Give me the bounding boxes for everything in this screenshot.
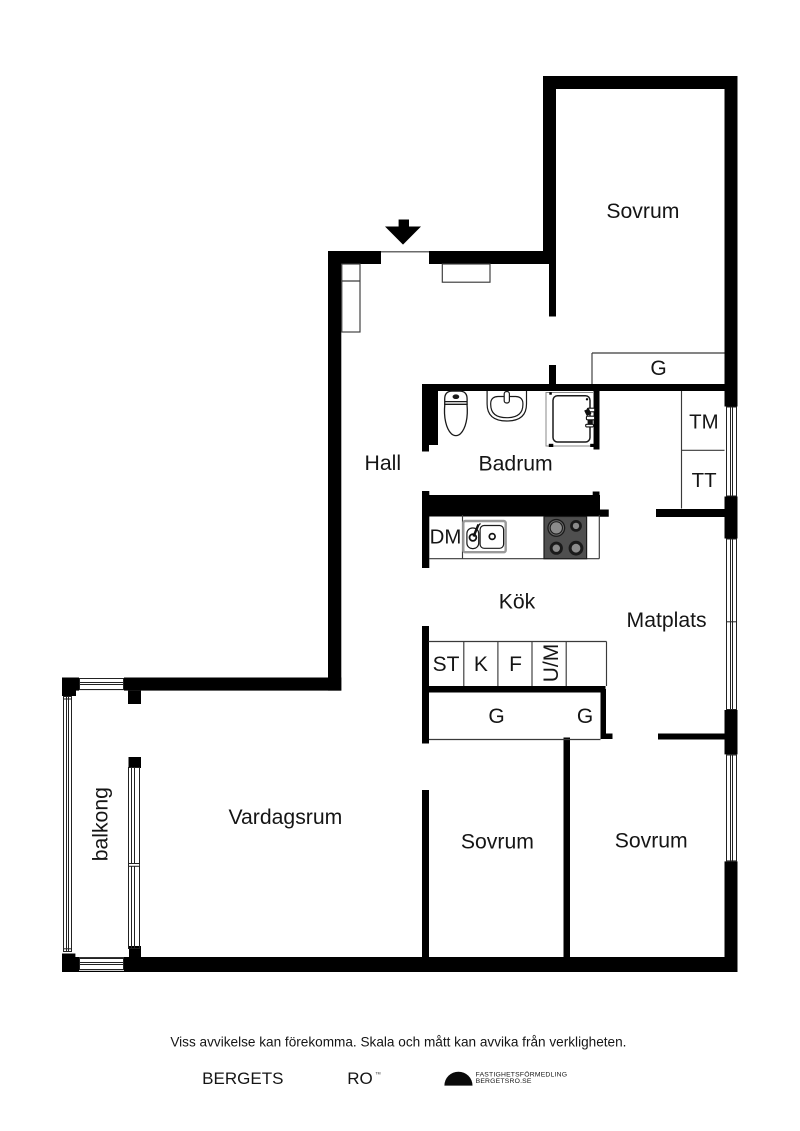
svg-text:Badrum: Badrum: [479, 453, 553, 476]
svg-text:Sovrum: Sovrum: [606, 200, 679, 223]
svg-text:balkong: balkong: [90, 787, 113, 861]
svg-text:Sovrum: Sovrum: [615, 830, 688, 853]
svg-text:Matplats: Matplats: [627, 609, 707, 632]
svg-text:G: G: [650, 357, 666, 380]
svg-text:G: G: [488, 705, 504, 728]
svg-text:RO: RO: [347, 1069, 373, 1088]
svg-text:DM: DM: [430, 526, 462, 548]
svg-text:G: G: [577, 705, 593, 728]
svg-text:TT: TT: [692, 470, 717, 492]
svg-text:Kök: Kök: [499, 590, 536, 613]
svg-text:Sovrum: Sovrum: [461, 831, 534, 854]
svg-text:BERGETS: BERGETS: [202, 1069, 283, 1088]
svg-text:Hall: Hall: [365, 452, 402, 475]
svg-text:Viss avvikelse kan förekomma.: Viss avvikelse kan förekomma. Skala och …: [170, 1035, 626, 1050]
svg-text:ST: ST: [433, 653, 460, 676]
svg-text:FASTIGHETSFÖRMEDLING: FASTIGHETSFÖRMEDLING: [476, 1070, 568, 1078]
svg-text:F: F: [509, 653, 522, 676]
svg-text:Vardagsrum: Vardagsrum: [228, 806, 342, 829]
svg-text:U/M: U/M: [540, 644, 563, 683]
svg-text:K: K: [474, 653, 488, 676]
svg-text:TM: TM: [376, 1072, 381, 1076]
svg-text:BERGETSRO.SE: BERGETSRO.SE: [476, 1078, 532, 1085]
svg-text:TM: TM: [689, 412, 718, 434]
